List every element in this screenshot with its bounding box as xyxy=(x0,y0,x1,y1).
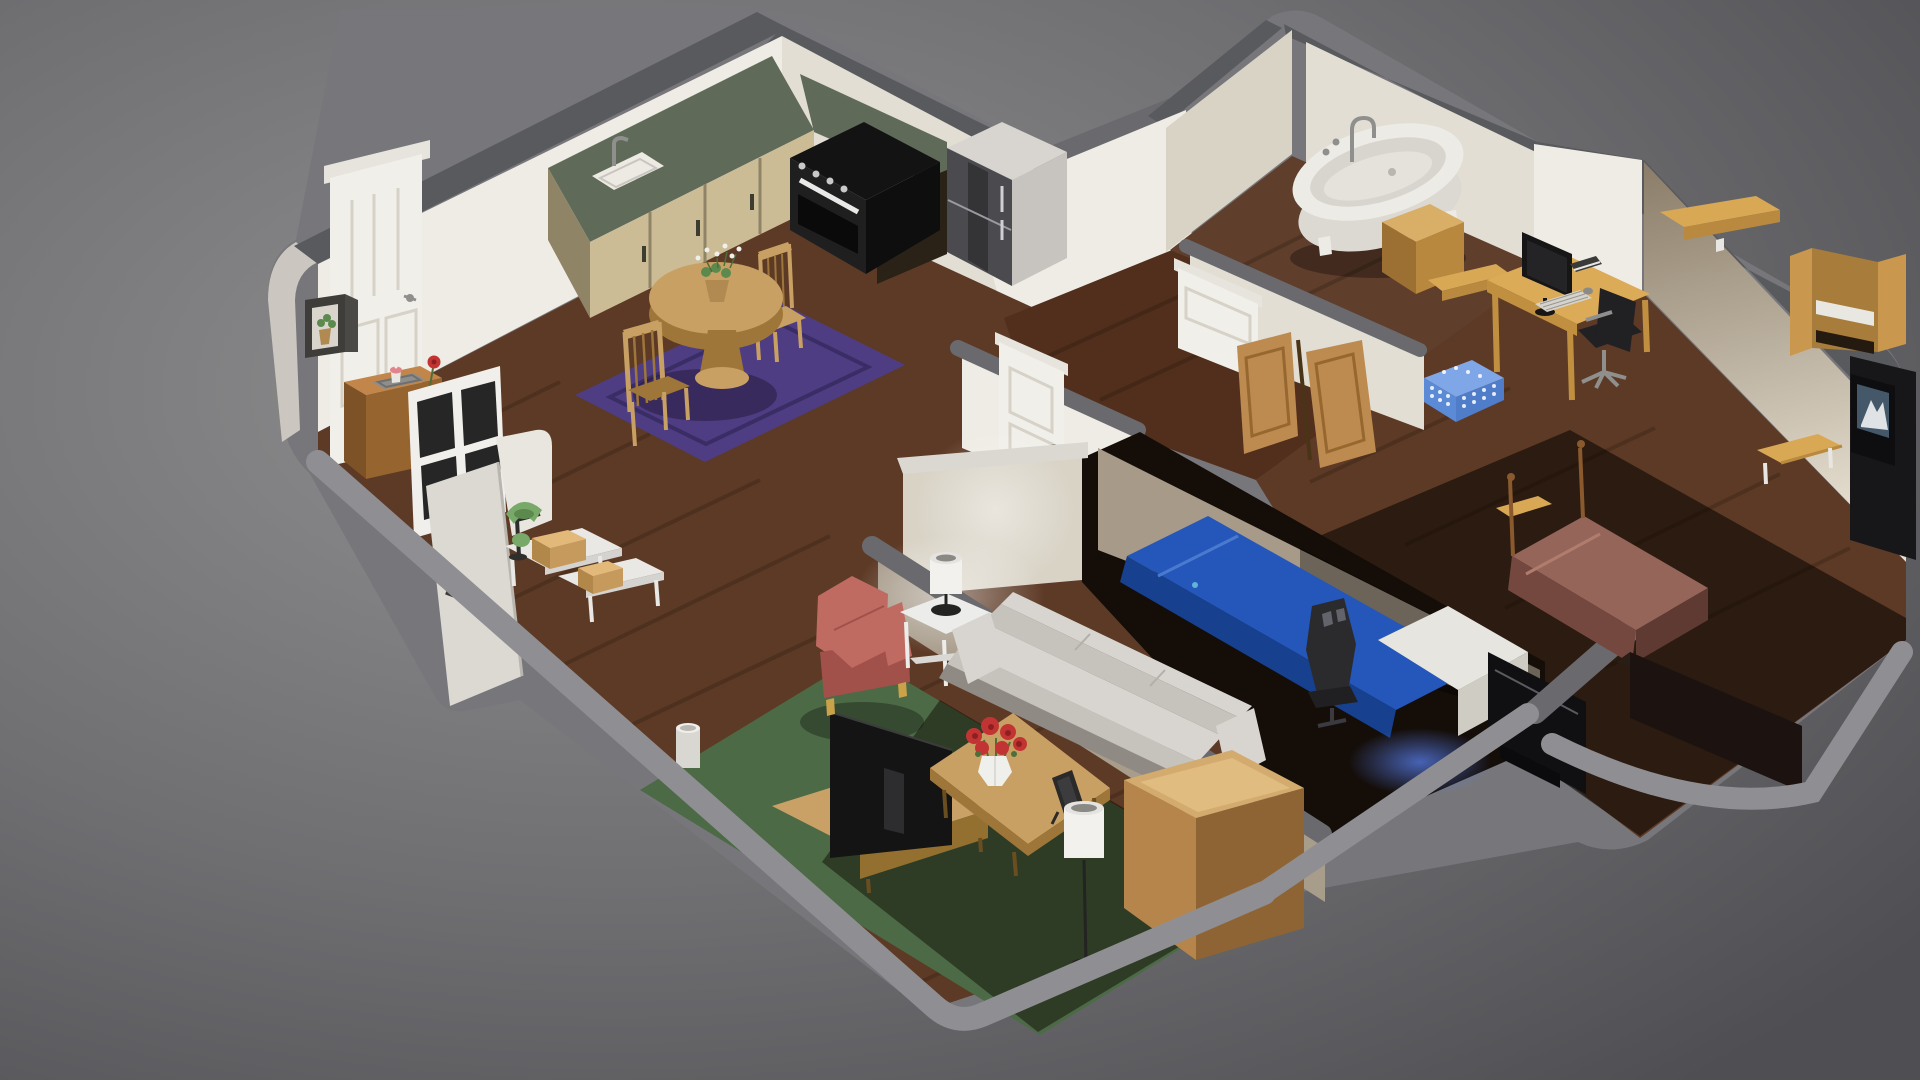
tub-drain xyxy=(1388,168,1396,176)
lamp-foot xyxy=(509,554,527,561)
lamp-shade-hole xyxy=(936,555,956,562)
render-viewport xyxy=(0,0,1920,1080)
refrigerator xyxy=(947,122,1067,286)
bifold-leaf-left xyxy=(1237,332,1298,454)
table-lamp xyxy=(930,552,962,616)
bookcase-right-panel xyxy=(1878,254,1906,352)
floor-lamp-shade-hole xyxy=(1071,804,1097,812)
scene-render xyxy=(0,0,1920,1080)
window-pane xyxy=(461,381,498,446)
window-pane xyxy=(417,392,455,458)
mouse xyxy=(1583,288,1593,295)
blanket-wrinkle xyxy=(1192,582,1198,588)
wall-cube-shelf xyxy=(305,294,358,358)
bin-body xyxy=(676,728,700,768)
waste-bin xyxy=(676,723,700,768)
tv-back-inset xyxy=(884,768,904,834)
shelf-bracket xyxy=(1716,238,1724,252)
rose-center xyxy=(432,360,437,365)
lamp-shade-inner xyxy=(514,509,534,519)
bookcase xyxy=(1790,248,1906,356)
floor-lamp-pole xyxy=(1084,860,1086,962)
table-base xyxy=(695,367,749,389)
lamp-base xyxy=(931,604,961,616)
bin-inner xyxy=(680,725,696,731)
framed-picture xyxy=(1851,374,1895,466)
cube-side xyxy=(345,294,358,352)
cupcake-dot xyxy=(395,366,398,369)
lamp-body xyxy=(512,533,530,547)
bookcase-left-panel xyxy=(1790,248,1812,356)
floor-lamp-shade xyxy=(1064,808,1104,858)
